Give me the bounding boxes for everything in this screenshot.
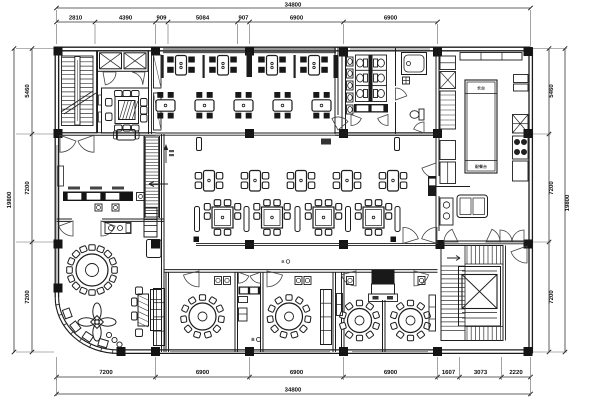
svg-text:配餐台: 配餐台 [475, 164, 487, 169]
svg-text:5460: 5460 [24, 84, 31, 98]
svg-text:B: B [282, 259, 285, 264]
svg-text:长台: 长台 [477, 85, 485, 90]
svg-text:6900: 6900 [384, 14, 398, 21]
svg-text:34800: 34800 [285, 1, 302, 8]
svg-text:5460: 5460 [548, 84, 555, 98]
svg-text:3073: 3073 [474, 369, 488, 376]
svg-text:7200: 7200 [548, 290, 555, 304]
svg-text:6900: 6900 [290, 369, 304, 376]
svg-text:6900: 6900 [384, 369, 398, 376]
svg-text:7200: 7200 [99, 369, 113, 376]
svg-text:909: 909 [156, 14, 167, 21]
svg-text:4390: 4390 [119, 14, 133, 21]
svg-text:2220: 2220 [509, 369, 523, 376]
svg-text:34800: 34800 [285, 386, 302, 393]
svg-text:5084: 5084 [196, 14, 210, 21]
svg-text:7200: 7200 [24, 290, 31, 304]
svg-text:6900: 6900 [290, 14, 304, 21]
svg-text:6900: 6900 [196, 369, 210, 376]
svg-text:7200: 7200 [548, 181, 555, 195]
svg-text:2810: 2810 [69, 14, 83, 21]
svg-text:1607: 1607 [442, 369, 456, 376]
svg-text:7200: 7200 [24, 181, 31, 195]
svg-text:19800: 19800 [6, 191, 13, 208]
svg-text:19800: 19800 [564, 194, 571, 211]
svg-text:907: 907 [238, 14, 249, 21]
